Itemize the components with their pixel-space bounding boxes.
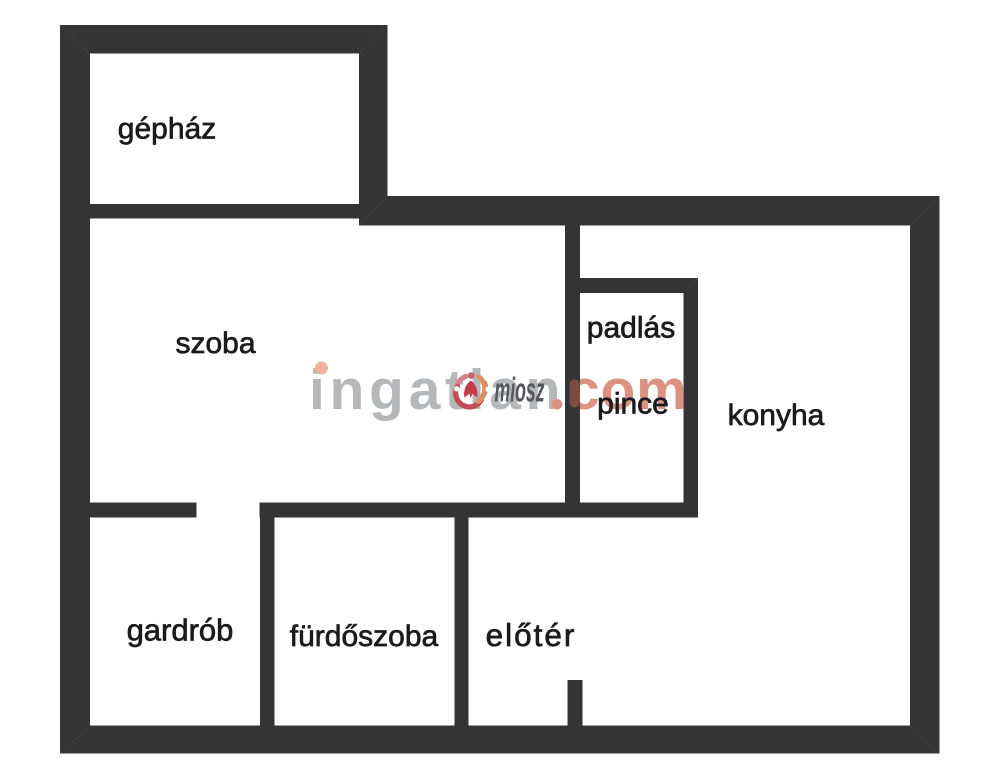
svg-text:padlás: padlás [587, 312, 675, 345]
svg-text:pince: pince [597, 388, 669, 421]
svg-text:előtér: előtér [486, 617, 577, 653]
svg-text:gardrób: gardrób [127, 613, 234, 648]
svg-text:gépház: gépház [118, 113, 216, 146]
svg-text:fürdőszoba: fürdőszoba [290, 620, 439, 653]
svg-text:szoba: szoba [175, 327, 255, 360]
svg-text:miosz: miosz [495, 370, 545, 409]
svg-text:konyha: konyha [728, 399, 825, 432]
